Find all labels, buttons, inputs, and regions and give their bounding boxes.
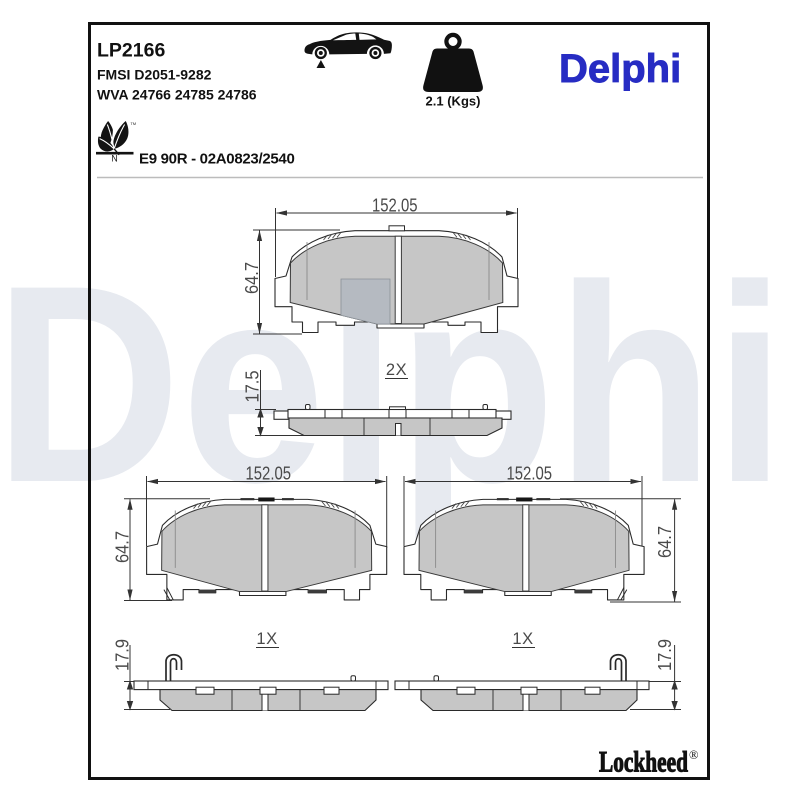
svg-text:®: ® [689, 748, 699, 762]
svg-text:N: N [111, 153, 117, 163]
svg-text:17.5: 17.5 [242, 371, 263, 403]
svg-text:2.1 (Kgs): 2.1 (Kgs) [426, 94, 481, 109]
svg-text:152.05: 152.05 [507, 463, 553, 484]
svg-text:Lockheed: Lockheed [599, 746, 688, 779]
svg-text:1X: 1X [512, 630, 533, 648]
svg-text:152.05: 152.05 [372, 195, 418, 216]
svg-text:64.7: 64.7 [654, 526, 675, 558]
svg-text:2X: 2X [386, 361, 407, 379]
svg-text:Delphi: Delphi [559, 47, 681, 91]
svg-text:FMSI D2051-9282: FMSI D2051-9282 [97, 67, 212, 83]
svg-text:17.9: 17.9 [654, 639, 675, 671]
svg-text:E9 90R - 02A0823/2540: E9 90R - 02A0823/2540 [139, 151, 295, 168]
svg-text:152.05: 152.05 [246, 463, 292, 484]
svg-text:1X: 1X [256, 630, 277, 648]
svg-text:LP2166: LP2166 [97, 40, 165, 62]
svg-text:64.7: 64.7 [241, 262, 262, 294]
svg-text:TM: TM [131, 122, 136, 126]
svg-text:64.7: 64.7 [112, 531, 133, 563]
svg-text:17.9: 17.9 [112, 639, 133, 671]
svg-text:WVA 24766 24785 24786: WVA 24766 24785 24786 [97, 87, 257, 103]
